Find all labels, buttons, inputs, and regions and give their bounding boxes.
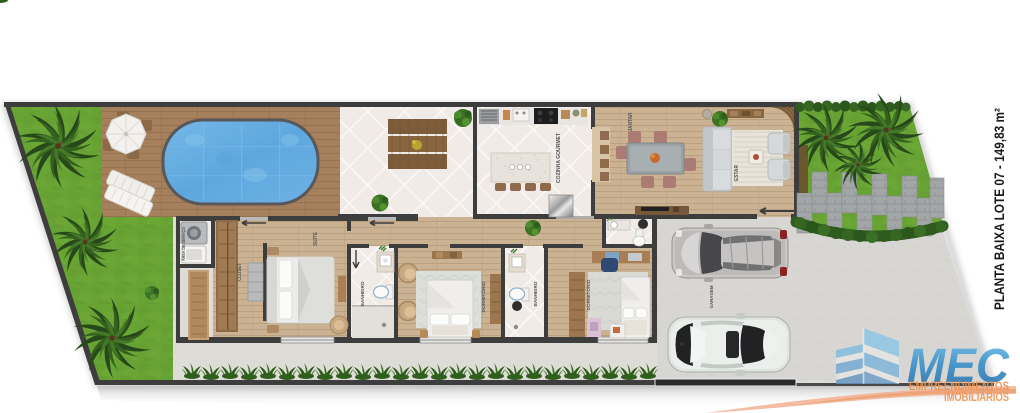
svg-text:JANTAR: JANTAR [628,112,634,131]
svg-text:DORMITÓRIO: DORMITÓRIO [586,279,591,311]
svg-text:ÁREA DE SERVIÇO: ÁREA DE SERVIÇO [181,226,186,261]
svg-text:DORMITÓRIO: DORMITÓRIO [481,281,486,313]
svg-text:COZINHA GOURMET: COZINHA GOURMET [556,132,562,183]
svg-text:ESTAR: ESTAR [734,165,740,181]
svg-text:BANHEIRO: BANHEIRO [533,281,538,307]
svg-text:PLANTA BAIXA LOTE 07 - 149,83: PLANTA BAIXA LOTE 07 - 149,83 m² [991,108,1007,310]
svg-text:IMOBILIÁRIOS: IMOBILIÁRIOS [944,389,1009,404]
svg-text:CLOSET: CLOSET [237,263,243,281]
svg-text:SUITE: SUITE [313,231,319,246]
svg-text:BANHEIRO: BANHEIRO [360,281,365,307]
svg-text:GARAGEM: GARAGEM [709,286,715,309]
